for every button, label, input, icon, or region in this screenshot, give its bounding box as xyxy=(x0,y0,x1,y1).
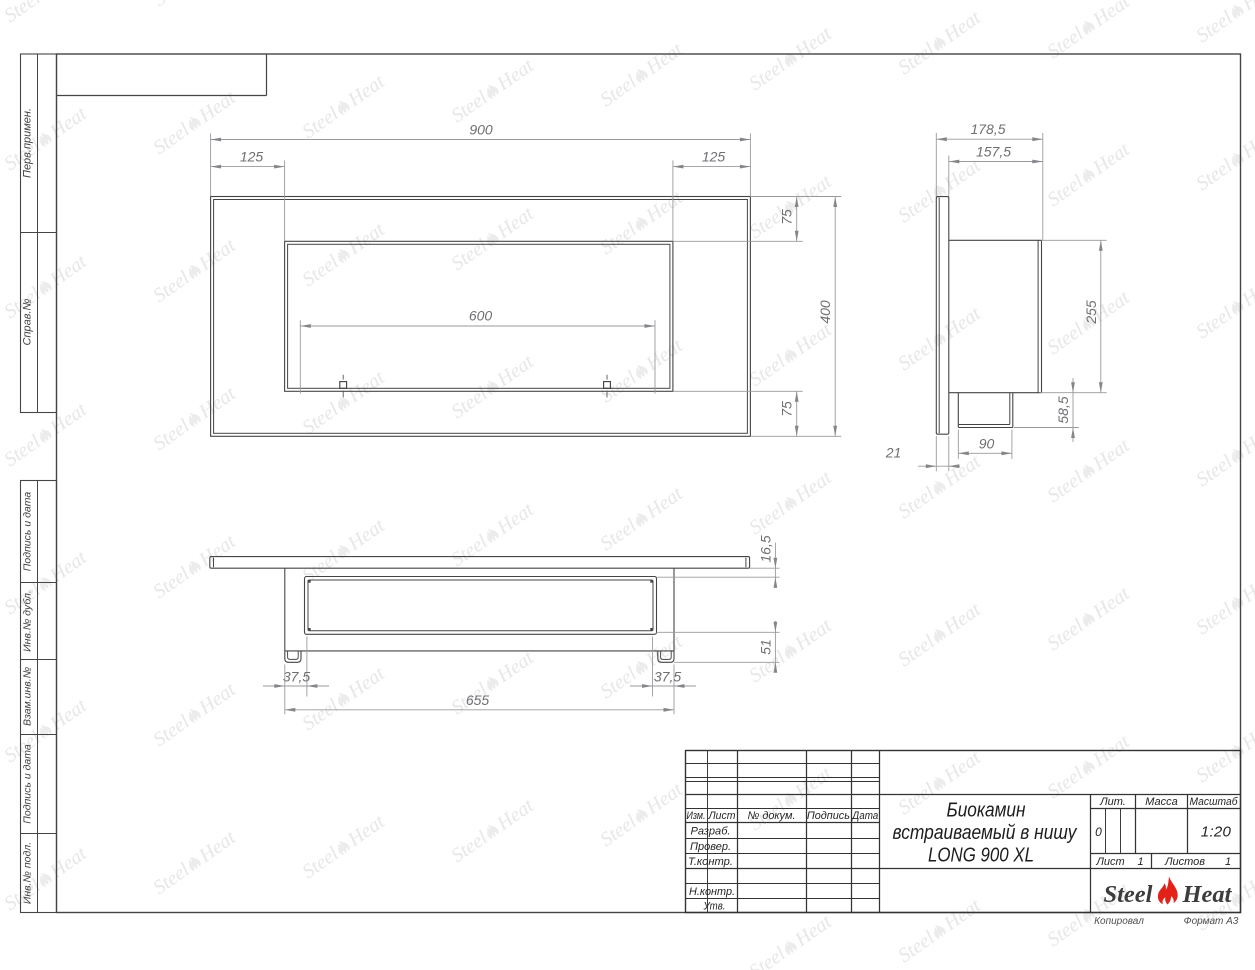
svg-text:900: 900 xyxy=(469,122,493,138)
svg-text:Steel: Steel xyxy=(1104,881,1153,908)
svg-text:125: 125 xyxy=(240,149,264,165)
svg-text:Лист: Лист xyxy=(708,810,736,822)
svg-text:157,5: 157,5 xyxy=(976,144,1011,160)
svg-text:655: 655 xyxy=(466,692,490,708)
svg-text:Подпись и дата: Подпись и дата xyxy=(22,744,34,824)
svg-text:51: 51 xyxy=(757,639,773,655)
svg-text:178,5: 178,5 xyxy=(970,121,1005,137)
svg-text:Инв.№ подл.: Инв.№ подл. xyxy=(22,842,34,904)
svg-text:Лит.: Лит. xyxy=(1099,796,1126,808)
svg-text:Т.контр.: Т.контр. xyxy=(688,856,733,868)
svg-text:1: 1 xyxy=(1137,856,1143,868)
svg-text:Heat: Heat xyxy=(1182,881,1233,908)
svg-text:Взам.инв.№: Взам.инв.№ xyxy=(22,667,34,726)
svg-text:Лист: Лист xyxy=(1095,856,1124,868)
svg-text:Перв.примен.: Перв.примен. xyxy=(22,108,34,178)
svg-text:Утв.: Утв. xyxy=(703,901,726,913)
svg-text:37,5: 37,5 xyxy=(283,669,310,685)
svg-text:Провер.: Провер. xyxy=(690,841,731,853)
svg-text:встраиваемый в нишу: встраиваемый в нишу xyxy=(893,822,1078,844)
svg-text:№ докум.: № докум. xyxy=(748,810,796,822)
svg-text:600: 600 xyxy=(469,308,493,324)
svg-text:Подпись и дата: Подпись и дата xyxy=(22,492,34,572)
svg-text:75: 75 xyxy=(779,401,795,417)
svg-text:90: 90 xyxy=(979,435,995,451)
svg-text:LONG 900 XL: LONG 900 XL xyxy=(928,845,1034,867)
svg-text:1: 1 xyxy=(1225,856,1231,868)
svg-text:16,5: 16,5 xyxy=(757,535,773,562)
svg-text:1:20: 1:20 xyxy=(1201,824,1232,841)
svg-text:Разраб.: Разраб. xyxy=(691,826,731,838)
svg-text:21: 21 xyxy=(885,445,902,461)
svg-text:125: 125 xyxy=(702,149,726,165)
svg-text:Изм.: Изм. xyxy=(687,810,706,822)
svg-text:255: 255 xyxy=(1083,300,1099,325)
svg-text:Масса: Масса xyxy=(1145,796,1178,808)
svg-text:Масштаб: Масштаб xyxy=(1190,796,1239,808)
svg-text:37,5: 37,5 xyxy=(654,669,681,685)
svg-text:Подпись: Подпись xyxy=(807,810,850,822)
svg-text:Инв.№ дубл.: Инв.№ дубл. xyxy=(22,590,34,652)
svg-text:400: 400 xyxy=(817,300,833,324)
svg-text:Формат А3: Формат А3 xyxy=(1184,916,1239,927)
svg-text:Копировал: Копировал xyxy=(1094,916,1144,927)
svg-text:Дата: Дата xyxy=(851,810,879,822)
svg-text:75: 75 xyxy=(779,209,795,225)
svg-text:Справ.№: Справ.№ xyxy=(22,298,34,345)
svg-text:0: 0 xyxy=(1095,825,1102,839)
svg-text:Биокамин: Биокамин xyxy=(947,800,1026,822)
svg-text:Листов: Листов xyxy=(1164,856,1205,868)
svg-text:58,5: 58,5 xyxy=(1055,396,1071,423)
svg-text:Н.контр.: Н.контр. xyxy=(689,886,735,898)
